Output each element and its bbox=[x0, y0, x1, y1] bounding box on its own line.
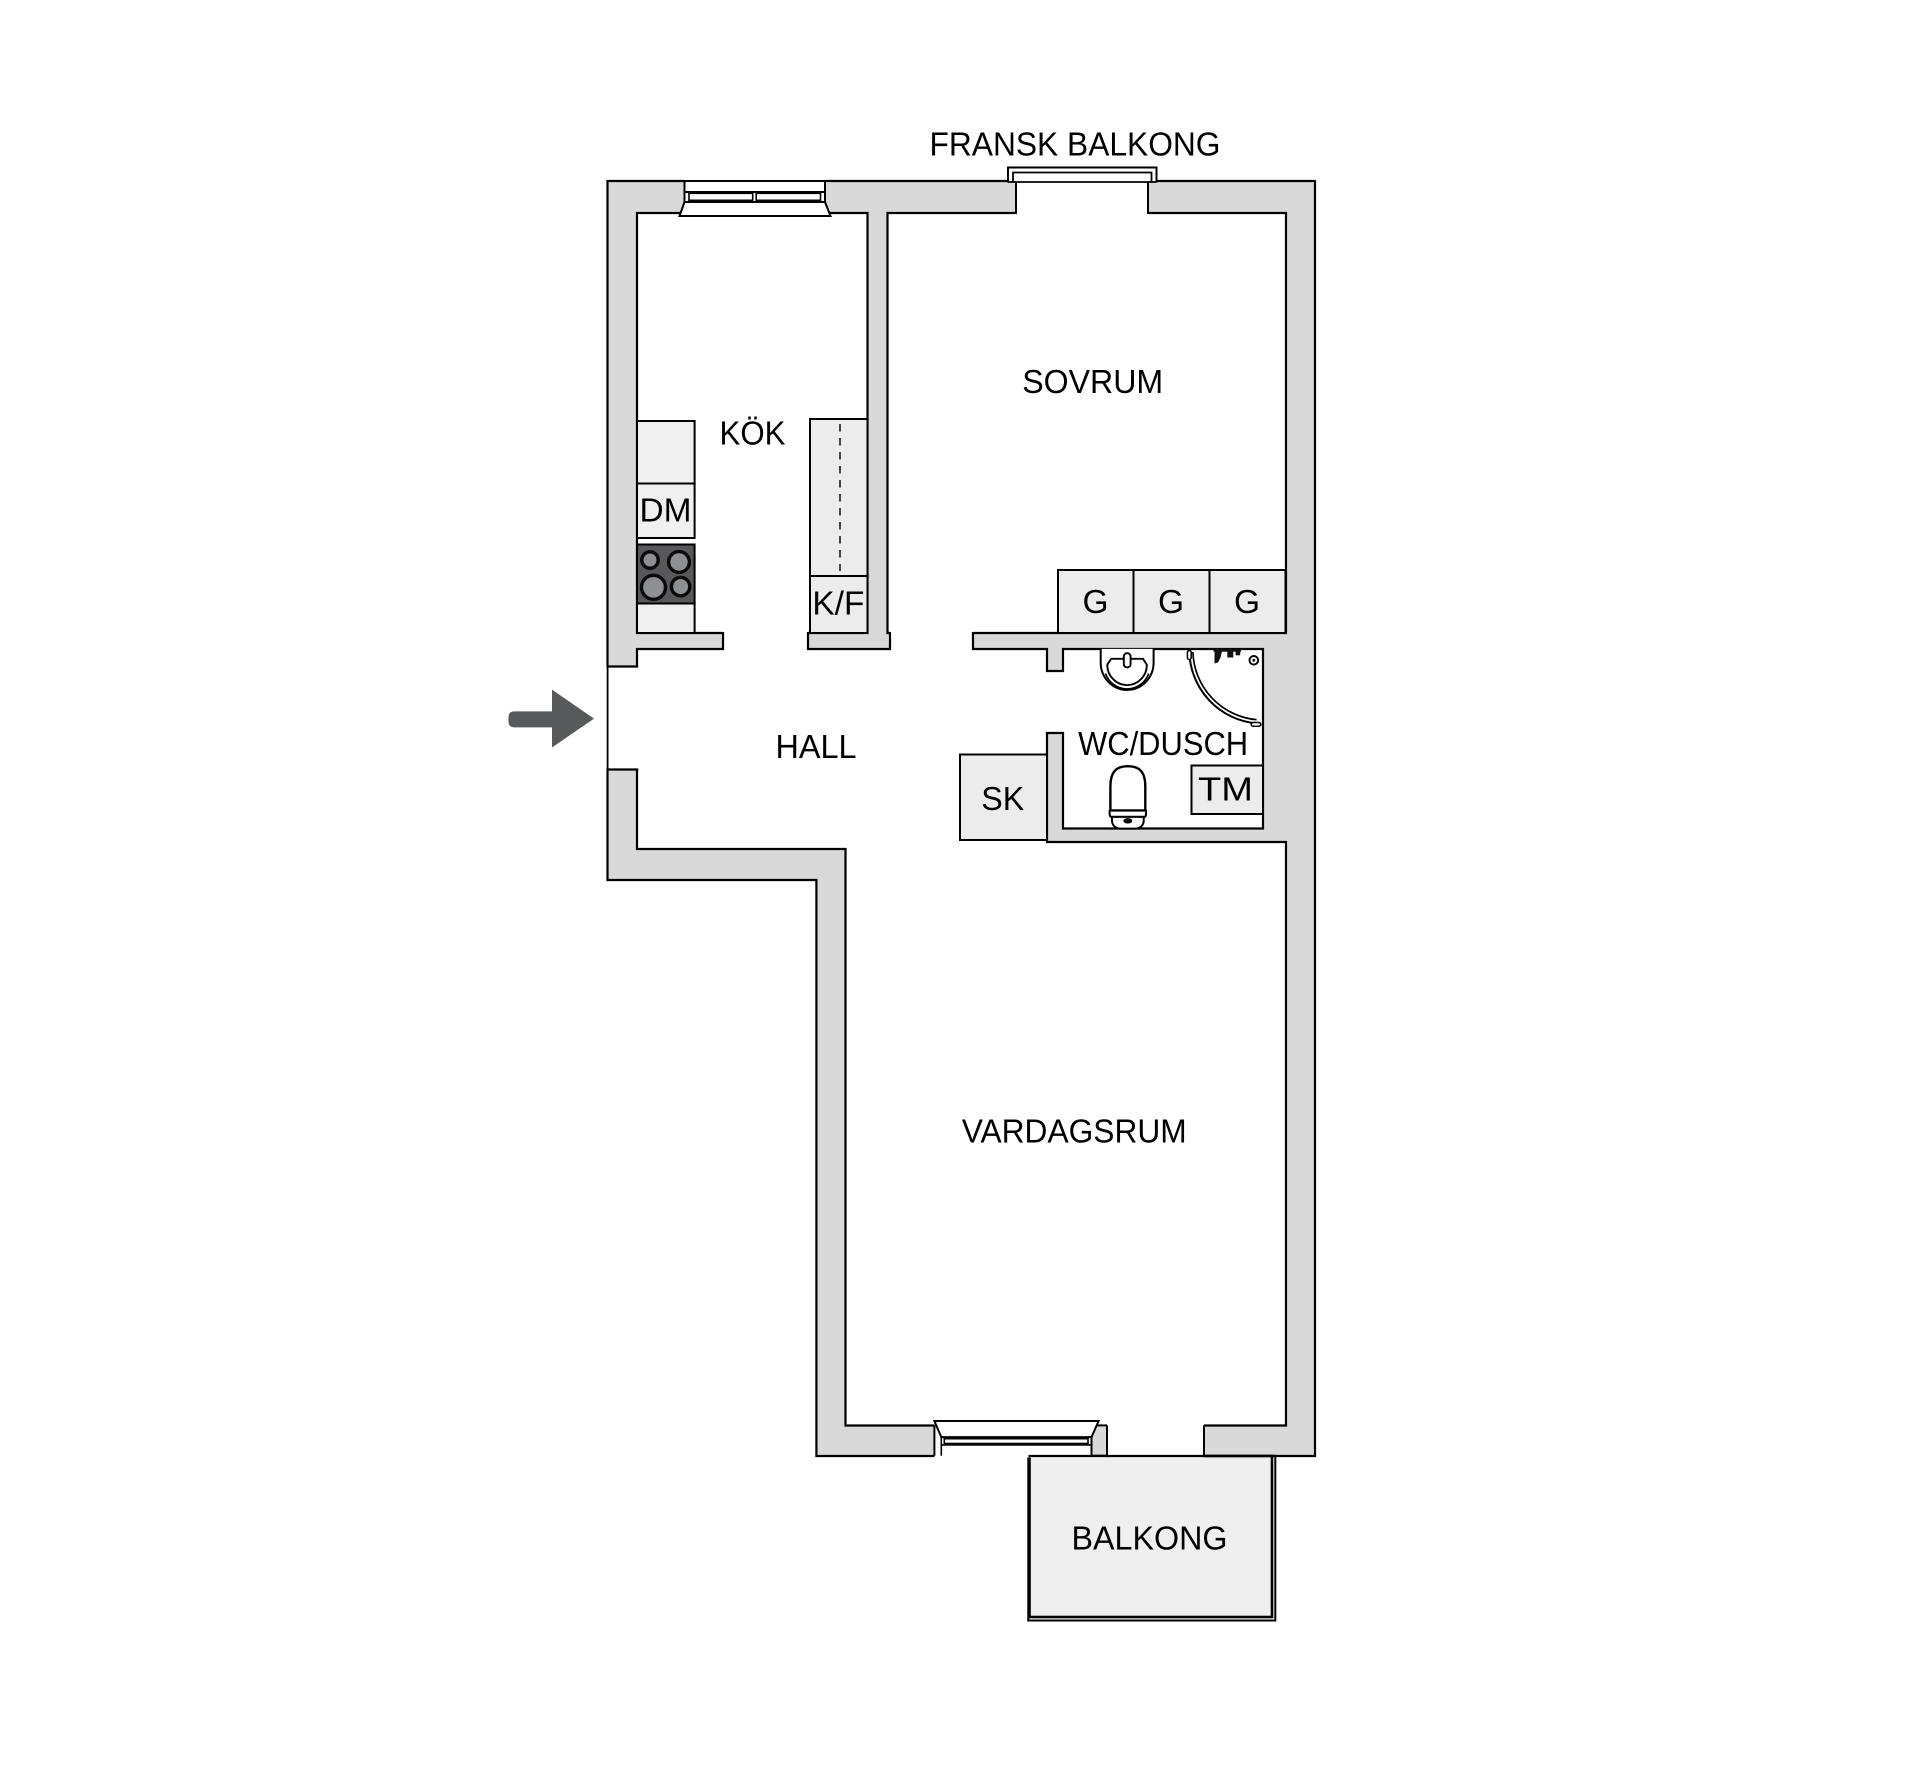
svg-text:SOVRUM: SOVRUM bbox=[1022, 364, 1163, 401]
svg-text:G: G bbox=[1158, 584, 1184, 621]
svg-text:KÖK: KÖK bbox=[720, 416, 786, 453]
svg-text:FRANSK BALKONG: FRANSK BALKONG bbox=[930, 127, 1221, 164]
svg-text:K/F: K/F bbox=[812, 586, 864, 623]
svg-text:SK: SK bbox=[981, 781, 1024, 818]
svg-text:VARDAGSRUM: VARDAGSRUM bbox=[962, 1114, 1187, 1151]
svg-text:TM: TM bbox=[1198, 771, 1253, 808]
svg-text:DM: DM bbox=[640, 493, 692, 530]
svg-text:G: G bbox=[1082, 584, 1108, 621]
svg-text:G: G bbox=[1234, 584, 1260, 621]
svg-text:BALKONG: BALKONG bbox=[1072, 1521, 1228, 1558]
svg-text:HALL: HALL bbox=[776, 729, 857, 766]
svg-text:WC/DUSCH: WC/DUSCH bbox=[1078, 726, 1248, 763]
